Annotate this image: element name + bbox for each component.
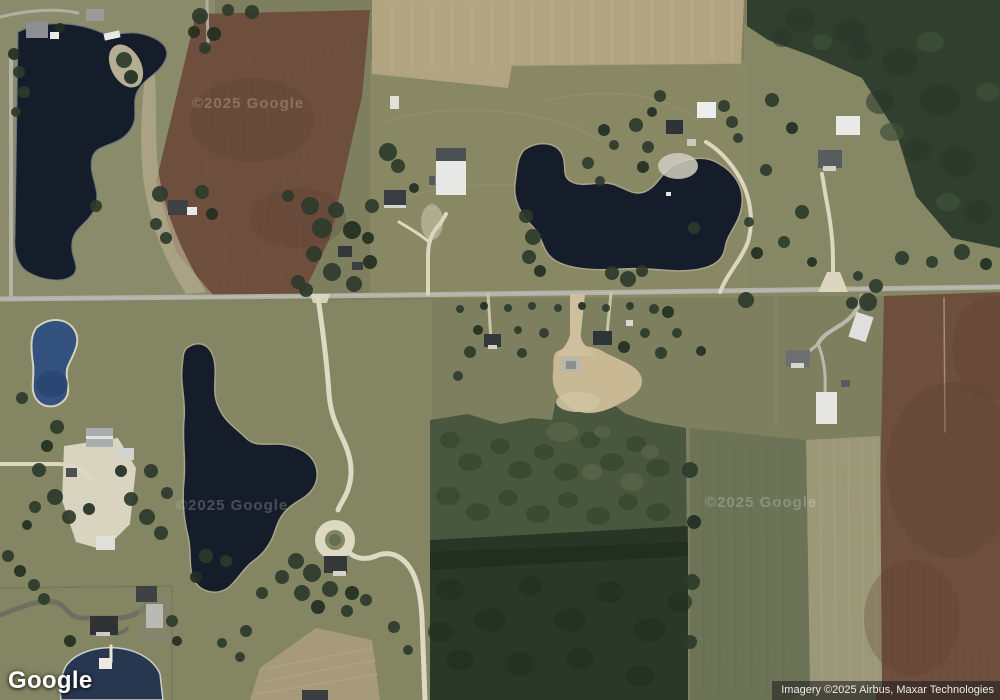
tree	[195, 185, 209, 199]
tree	[115, 465, 127, 477]
tree	[626, 302, 634, 310]
tree	[11, 107, 21, 117]
tree	[528, 302, 536, 310]
texture-blob	[518, 576, 542, 596]
tree	[954, 244, 970, 260]
tree	[629, 118, 643, 132]
tree	[323, 263, 341, 281]
tree	[311, 600, 325, 614]
tree	[522, 250, 536, 264]
texture-blob	[646, 459, 670, 477]
building	[429, 176, 435, 185]
tree	[288, 553, 304, 569]
tree	[409, 183, 419, 193]
tree	[301, 197, 319, 215]
tree	[760, 164, 772, 176]
tree	[256, 587, 268, 599]
tree	[217, 638, 227, 648]
tree	[926, 256, 938, 268]
tree	[235, 652, 245, 662]
building	[338, 246, 352, 257]
building	[818, 150, 842, 168]
tree	[152, 186, 168, 202]
tree	[388, 621, 400, 633]
tree	[403, 645, 413, 655]
texture-blob	[880, 123, 904, 141]
texture-blob	[546, 422, 578, 442]
texture-blob	[582, 464, 602, 480]
texture-blob	[554, 608, 586, 632]
texture-blob	[618, 494, 638, 510]
texture-blob	[668, 592, 692, 612]
tree	[346, 276, 362, 292]
texture-blob	[556, 392, 600, 412]
texture-blob	[458, 453, 482, 471]
tree	[14, 565, 26, 577]
tree	[341, 605, 353, 617]
tree	[895, 251, 909, 265]
texture-blob	[904, 139, 932, 161]
tree	[514, 326, 522, 334]
texture-blob	[421, 204, 443, 240]
tree	[154, 526, 168, 540]
tree	[609, 140, 619, 150]
texture-blob	[940, 147, 976, 177]
building	[66, 468, 77, 477]
texture-blob	[936, 193, 960, 211]
tree	[519, 209, 533, 223]
tree	[160, 232, 172, 244]
texture-blob	[620, 473, 644, 491]
tree	[718, 100, 730, 112]
tree	[853, 271, 863, 281]
building	[384, 205, 406, 208]
tree	[306, 246, 322, 262]
tree	[28, 579, 40, 591]
tree	[47, 489, 63, 505]
tree	[166, 615, 178, 627]
texture-blob	[864, 560, 960, 676]
building	[384, 190, 406, 206]
building	[488, 345, 497, 349]
tree	[199, 549, 213, 563]
tree	[190, 571, 202, 583]
building	[666, 192, 671, 196]
texture-blob	[490, 438, 510, 454]
tree	[578, 302, 586, 310]
tree	[83, 503, 95, 515]
tree	[188, 26, 200, 38]
tree	[636, 265, 648, 277]
lane-n	[207, 0, 208, 46]
tree	[312, 218, 332, 238]
tree	[554, 304, 562, 312]
building	[791, 363, 804, 368]
texture-blob	[882, 48, 918, 76]
building	[50, 32, 59, 39]
building	[390, 96, 399, 109]
tree	[539, 328, 549, 338]
tree	[360, 594, 372, 606]
tree	[16, 392, 28, 404]
tree	[29, 501, 41, 513]
tree	[605, 266, 619, 280]
tree	[8, 48, 20, 60]
tree	[299, 283, 313, 297]
texture-blob	[440, 432, 460, 448]
tree	[618, 341, 630, 353]
texture-blob	[446, 649, 474, 671]
texture-blob	[428, 622, 452, 642]
texture-blob	[474, 608, 506, 632]
building	[436, 148, 466, 161]
tree	[846, 297, 858, 309]
texture-blob	[190, 78, 314, 162]
tree	[275, 570, 289, 584]
tree	[456, 305, 464, 313]
tree	[453, 371, 463, 381]
texture-blob	[566, 647, 594, 669]
tree	[726, 116, 738, 128]
building	[302, 690, 328, 700]
tree	[687, 515, 701, 529]
tree	[365, 199, 379, 213]
texture-blob	[586, 507, 610, 525]
building	[168, 200, 188, 215]
tree	[655, 347, 667, 359]
field-strip-se	[806, 436, 882, 690]
tree	[642, 141, 654, 153]
building	[841, 380, 850, 387]
texture-blob	[596, 581, 624, 603]
tree	[807, 257, 817, 267]
texture-blob	[554, 463, 578, 481]
building	[118, 448, 134, 460]
texture-blob	[594, 426, 610, 438]
tree	[480, 302, 488, 310]
tree	[980, 258, 992, 270]
tree	[744, 217, 754, 227]
tree	[64, 635, 76, 647]
texture-blob	[600, 453, 624, 471]
tree	[41, 440, 53, 452]
tree	[220, 555, 232, 567]
building	[666, 120, 683, 134]
tree	[738, 292, 754, 308]
tree	[733, 133, 743, 143]
cul-de-sac-island	[329, 534, 341, 546]
tree	[55, 23, 65, 33]
tree	[328, 202, 344, 218]
texture-blob	[436, 487, 460, 505]
tree	[786, 122, 798, 134]
tree	[647, 107, 657, 117]
texture-blob	[848, 40, 872, 60]
building	[816, 392, 837, 424]
tree	[343, 221, 361, 239]
tree	[688, 222, 700, 234]
building	[697, 102, 716, 118]
building	[593, 331, 612, 345]
tree	[582, 157, 594, 169]
tree	[363, 255, 377, 269]
tree	[504, 304, 512, 312]
tree	[139, 509, 155, 525]
tree	[90, 200, 102, 212]
tree	[199, 42, 211, 54]
tree	[206, 208, 218, 220]
tree	[525, 229, 541, 245]
texture-blob	[641, 445, 659, 459]
tree	[672, 328, 682, 338]
building	[26, 22, 48, 38]
tree	[602, 304, 610, 312]
tree	[222, 4, 234, 16]
tree	[303, 564, 321, 582]
texture-blob	[786, 8, 814, 32]
tree	[682, 462, 698, 478]
tree	[869, 279, 883, 293]
map-canvas[interactable]: Google Imagery ©2025 Airbus, Maxar Techn…	[0, 0, 1000, 700]
tree	[192, 8, 208, 24]
tree	[765, 93, 779, 107]
tree	[649, 304, 659, 314]
texture-blob	[250, 188, 346, 248]
tree	[150, 218, 162, 230]
tree	[124, 492, 138, 506]
texture-blob	[466, 503, 490, 521]
texture-blob	[964, 200, 992, 224]
tree	[345, 586, 359, 600]
texture-blob	[634, 618, 666, 642]
tree	[245, 5, 259, 19]
texture-blob	[812, 34, 832, 50]
texture-blob	[772, 29, 792, 47]
building	[823, 166, 836, 171]
tree	[22, 520, 32, 530]
texture-blob	[526, 505, 550, 523]
tree	[637, 161, 649, 173]
tree	[859, 293, 877, 311]
texture-blob	[504, 652, 536, 676]
tree	[534, 265, 546, 277]
tree	[598, 124, 610, 136]
tree	[662, 306, 674, 318]
tree	[696, 346, 706, 356]
tree	[62, 510, 76, 524]
google-logo[interactable]: Google	[8, 667, 92, 695]
building	[626, 320, 633, 326]
building	[687, 139, 696, 146]
tree	[207, 27, 221, 41]
texture-blob	[976, 83, 1000, 101]
tree	[778, 236, 790, 248]
imagery-attribution: Imagery ©2025 Airbus, Maxar Technologies	[772, 681, 1000, 700]
tree	[595, 176, 605, 186]
building	[333, 571, 346, 576]
texture-blob	[508, 461, 532, 479]
tree	[751, 247, 763, 259]
tree	[144, 464, 158, 478]
tree	[379, 143, 397, 161]
texture-blob	[626, 665, 654, 687]
texture-blob	[436, 579, 464, 601]
texture-blob	[658, 153, 698, 179]
tree	[13, 66, 25, 78]
tree	[172, 636, 182, 646]
texture-blob	[558, 492, 578, 508]
tree	[18, 86, 30, 98]
tree	[391, 159, 405, 173]
building	[187, 207, 197, 215]
tree	[32, 463, 46, 477]
building	[96, 632, 110, 636]
building	[96, 536, 115, 550]
tree	[294, 585, 310, 601]
driveway-flare	[310, 294, 330, 303]
texture-blob	[920, 84, 960, 116]
texture-blob	[916, 32, 944, 52]
tree	[116, 52, 132, 68]
building	[99, 658, 112, 669]
tree	[282, 190, 294, 202]
terrain-svg	[0, 0, 1000, 700]
building	[136, 586, 157, 602]
tree	[50, 420, 64, 434]
tree	[620, 271, 636, 287]
tree	[322, 581, 338, 597]
texture-blob	[498, 490, 518, 506]
building	[146, 604, 163, 628]
tree	[38, 593, 50, 605]
texture-blob	[36, 371, 68, 397]
texture-blob	[646, 503, 670, 521]
tree	[2, 550, 14, 562]
tree	[362, 232, 374, 244]
texture-blob	[534, 444, 554, 460]
building	[86, 436, 113, 439]
building	[86, 9, 104, 21]
tree	[654, 90, 666, 102]
tree	[640, 328, 650, 338]
tree	[683, 635, 697, 649]
tree	[473, 325, 483, 335]
texture-blob	[866, 90, 894, 114]
building	[324, 556, 347, 573]
tree	[795, 205, 809, 219]
tree	[161, 487, 173, 499]
building	[566, 361, 576, 369]
building	[352, 262, 363, 270]
tree	[124, 70, 138, 84]
tree	[240, 625, 252, 637]
tree	[684, 574, 700, 590]
building	[836, 116, 860, 135]
tree	[464, 346, 476, 358]
tree	[517, 348, 527, 358]
